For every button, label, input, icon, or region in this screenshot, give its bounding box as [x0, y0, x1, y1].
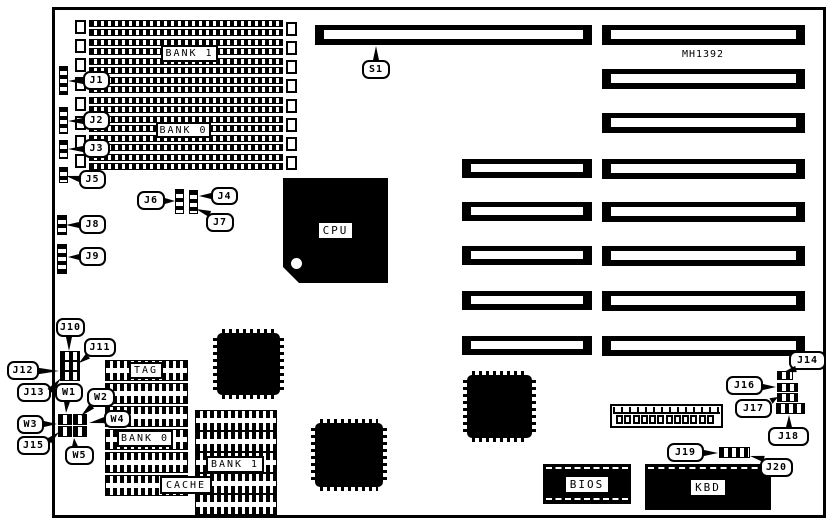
- callout-j15: J15: [17, 436, 50, 455]
- slot-key-stripe: [471, 207, 583, 215]
- dip-pins-top: [106, 453, 187, 460]
- expansion-slot: [462, 202, 592, 221]
- motherboard-diagram: BANK 1BANK 0TAGBANK 0BANK 1CACHECPUBIOSK…: [0, 0, 837, 527]
- callout-w3: W3: [17, 415, 44, 434]
- slot-key-stripe: [611, 74, 796, 83]
- cpu-label: CPU: [319, 223, 353, 238]
- slot-key-stripe: [611, 164, 796, 173]
- expansion-slot: [602, 246, 805, 266]
- callout-j10: J10: [56, 318, 85, 337]
- kbd-label: KBD: [691, 480, 725, 495]
- callout-w4: W4: [104, 410, 131, 428]
- slot-key-stripe: [471, 341, 583, 349]
- simm-contact-strip: [89, 20, 283, 27]
- simm-contact-strip: [89, 77, 283, 84]
- callout-w5: W5: [65, 446, 94, 465]
- jumper-j10-j13-row3: [60, 371, 80, 381]
- callout-j8: J8: [79, 215, 106, 234]
- slot-key-stripe: [611, 296, 796, 305]
- jumper-j10-j13-row2: [60, 361, 80, 371]
- jumper-w-block-4: [73, 426, 87, 437]
- pin-fringe-right: [280, 338, 284, 390]
- connector-socket: [690, 415, 697, 424]
- slot-key-stripe: [324, 30, 583, 39]
- connector-socket: [649, 415, 656, 424]
- expansion-slot: [462, 336, 592, 355]
- socket-dash-bottom: [546, 498, 628, 500]
- simm-clip-right: [286, 22, 297, 36]
- simm-clip-right: [286, 118, 297, 132]
- simm-clip-left: [75, 39, 86, 53]
- jumper-j9: [57, 244, 67, 274]
- pin-header-connector: [610, 404, 723, 428]
- connector-socket: [666, 415, 673, 424]
- dip-pins-bottom: [196, 423, 276, 430]
- pin-fringe-bottom: [472, 438, 527, 442]
- board-layer: BANK 1BANK 0TAGBANK 0BANK 1CACHECPUBIOSK…: [0, 0, 837, 527]
- slot-key-stripe: [611, 118, 796, 127]
- connector-socket: [657, 415, 664, 424]
- callout-j12: J12: [7, 361, 39, 380]
- jumper-j3: [59, 140, 68, 159]
- jumper-j17: [777, 393, 798, 402]
- cache-dip-row: [195, 431, 277, 452]
- connector-socket: [641, 415, 648, 424]
- callout-s1: S1: [362, 60, 390, 79]
- callout-w2: W2: [87, 388, 115, 407]
- slot-key-stripe: [611, 207, 796, 216]
- bios-label: BIOS: [566, 477, 609, 492]
- connector-socket: [616, 415, 623, 424]
- cache-area-label: BANK 0: [117, 430, 173, 447]
- jumper-j19: [719, 447, 750, 458]
- simm-clip-right: [286, 99, 297, 113]
- connector-socket: [633, 415, 640, 424]
- qfp-chip-2: [315, 423, 383, 487]
- cache-dip-row: [195, 494, 277, 515]
- simm-clip-right: [286, 41, 297, 55]
- dip-pins-top: [106, 384, 187, 391]
- connector-socket: [682, 415, 689, 424]
- pin-fringe-bottom: [320, 487, 378, 491]
- simm-contact-strip: [89, 106, 283, 113]
- simm-socket-row: [75, 97, 297, 113]
- expansion-slot: [462, 246, 592, 265]
- simm-contact-strip: [89, 86, 283, 93]
- callout-j2: J2: [83, 111, 110, 130]
- connector-socket: [699, 415, 706, 424]
- qfp-chip-1: [217, 333, 280, 395]
- callout-j16: J16: [726, 376, 763, 395]
- jumper-j10-j13-row1: [60, 351, 80, 361]
- slot-key-stripe: [471, 164, 583, 172]
- cache-area-label: BANK 1: [206, 456, 264, 473]
- simm-contact-strip: [89, 67, 283, 74]
- callout-j17: J17: [735, 399, 772, 418]
- callout-j9: J9: [79, 247, 106, 266]
- connector-pin-strip: [613, 407, 720, 414]
- jumper-j6: [175, 189, 184, 214]
- expansion-slot: [315, 25, 592, 45]
- expansion-slot: [602, 336, 805, 356]
- callout-j6: J6: [137, 191, 165, 210]
- dip-pins-bottom: [196, 444, 276, 451]
- cache-dip-row: [105, 383, 188, 404]
- dip-pins-top: [196, 495, 276, 502]
- socket-dash-top: [546, 467, 628, 469]
- simm-socket-row: [75, 20, 297, 36]
- simm-contact-strip: [89, 154, 283, 161]
- pin-fringe-right: [383, 428, 387, 482]
- expansion-slot: [602, 291, 805, 311]
- pin-fringe-top: [320, 419, 378, 423]
- slot-key-stripe: [611, 341, 796, 350]
- cache-area-label: TAG: [129, 362, 163, 379]
- kbd-chip: KBD: [645, 464, 771, 510]
- dip-pins-top: [196, 432, 276, 439]
- dip-pins-bottom: [106, 465, 187, 472]
- cpu-pin1-dot: [291, 258, 302, 269]
- pin-fringe-top: [472, 371, 527, 375]
- jumper-j1: [59, 66, 68, 95]
- part-number-label: MH1392: [672, 49, 734, 60]
- simm-socket-row: [75, 154, 297, 170]
- simm-clip-right: [286, 137, 297, 151]
- simm-contact-strip: [89, 163, 283, 170]
- jumper-j14: [777, 371, 793, 380]
- simm-contact-strip: [89, 29, 283, 36]
- jumper-w-block-2: [73, 414, 87, 425]
- simm-contact-strip: [89, 144, 283, 151]
- connector-socket: [707, 415, 714, 424]
- connector-socket: [674, 415, 681, 424]
- callout-j5: J5: [79, 170, 106, 189]
- simm-clip-left: [75, 58, 86, 72]
- jumper-j8: [57, 215, 67, 235]
- slot-key-stripe: [471, 296, 583, 304]
- callout-j11: J11: [84, 338, 116, 357]
- slot-key-stripe: [471, 251, 583, 259]
- slot-key-stripe: [611, 30, 796, 39]
- dip-pins-top: [196, 411, 276, 418]
- cache-dip-row: [105, 452, 188, 473]
- pin-fringe-top: [222, 329, 275, 333]
- cpu-chip: CPU: [283, 178, 388, 283]
- pin-fringe-bottom: [222, 395, 275, 399]
- simm-clip-right: [286, 60, 297, 74]
- expansion-slot: [602, 159, 805, 179]
- simm-clip-right: [286, 156, 297, 170]
- callout-j14: J14: [789, 351, 826, 370]
- simm-clip-right: [286, 79, 297, 93]
- pin-fringe-left: [213, 338, 217, 390]
- qfp-chip-3: [467, 375, 532, 438]
- callout-j13: J13: [17, 383, 51, 402]
- pin-fringe-left: [311, 428, 315, 482]
- simm-clip-left: [75, 20, 86, 34]
- callout-j1: J1: [83, 71, 110, 90]
- expansion-slot: [602, 69, 805, 89]
- callout-j4: J4: [211, 187, 238, 205]
- callout-j20: J20: [760, 458, 793, 477]
- callout-j19: J19: [667, 443, 704, 462]
- memory-bank-label: BANK 0: [156, 122, 211, 138]
- jumper-j2: [59, 107, 68, 134]
- jumper-j16: [777, 383, 798, 392]
- dip-pins-bottom: [106, 396, 187, 403]
- dip-pins-bottom: [196, 507, 276, 514]
- pin-fringe-right: [532, 380, 536, 433]
- callout-j18: J18: [768, 427, 809, 446]
- jumper-w-block-3: [58, 426, 72, 437]
- jumper-j5: [59, 167, 68, 183]
- cache-area-label: CACHE: [160, 476, 212, 494]
- connector-socket: [624, 415, 631, 424]
- expansion-slot: [462, 291, 592, 310]
- slot-key-stripe: [611, 251, 796, 260]
- pin-fringe-left: [463, 380, 467, 433]
- simm-clip-left: [75, 97, 86, 111]
- simm-contact-strip: [89, 97, 283, 104]
- bios-chip: BIOS: [543, 464, 631, 504]
- expansion-slot: [602, 25, 805, 45]
- memory-bank-label: BANK 1: [161, 45, 218, 62]
- expansion-slot: [462, 159, 592, 178]
- expansion-slot: [602, 113, 805, 133]
- cache-dip-row: [195, 410, 277, 431]
- expansion-slot: [602, 202, 805, 222]
- jumper-w-block-1: [58, 414, 72, 425]
- callout-w1: W1: [55, 383, 83, 402]
- jumper-j4-j7: [189, 190, 198, 214]
- socket-dash-top: [648, 467, 768, 469]
- jumper-j18: [776, 403, 805, 414]
- callout-j7: J7: [206, 213, 234, 232]
- callout-j3: J3: [83, 139, 110, 158]
